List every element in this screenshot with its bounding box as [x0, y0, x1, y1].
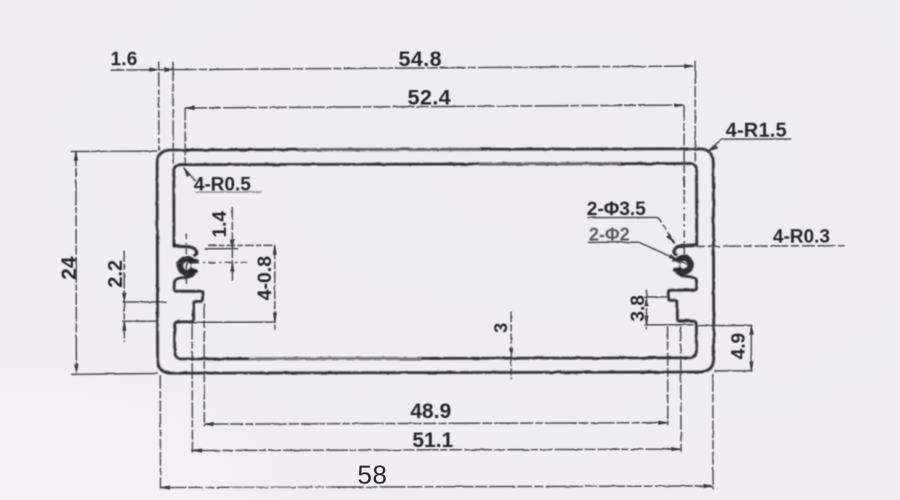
svg-text:2.2: 2.2 [105, 260, 127, 288]
svg-text:4-R0.3: 4-R0.3 [773, 227, 830, 248]
svg-text:52.4: 52.4 [408, 85, 452, 109]
svg-text:4-0.8: 4-0.8 [254, 256, 276, 301]
svg-text:48.9: 48.9 [410, 400, 451, 423]
svg-text:54.8: 54.8 [398, 47, 442, 71]
svg-text:4-R1.5: 4-R1.5 [726, 120, 787, 142]
svg-text:3.8: 3.8 [628, 295, 649, 321]
svg-text:4.9: 4.9 [729, 333, 750, 359]
svg-text:1.4: 1.4 [210, 211, 231, 238]
svg-text:24: 24 [58, 256, 81, 280]
svg-text:51.1: 51.1 [412, 429, 453, 452]
svg-text:2-Φ3.5: 2-Φ3.5 [587, 199, 646, 220]
svg-text:1.6: 1.6 [110, 49, 137, 70]
svg-text:2-Φ2: 2-Φ2 [589, 225, 630, 245]
svg-text:3: 3 [491, 323, 511, 333]
svg-text:4-R0.5: 4-R0.5 [194, 174, 252, 195]
svg-text:58: 58 [357, 460, 387, 490]
